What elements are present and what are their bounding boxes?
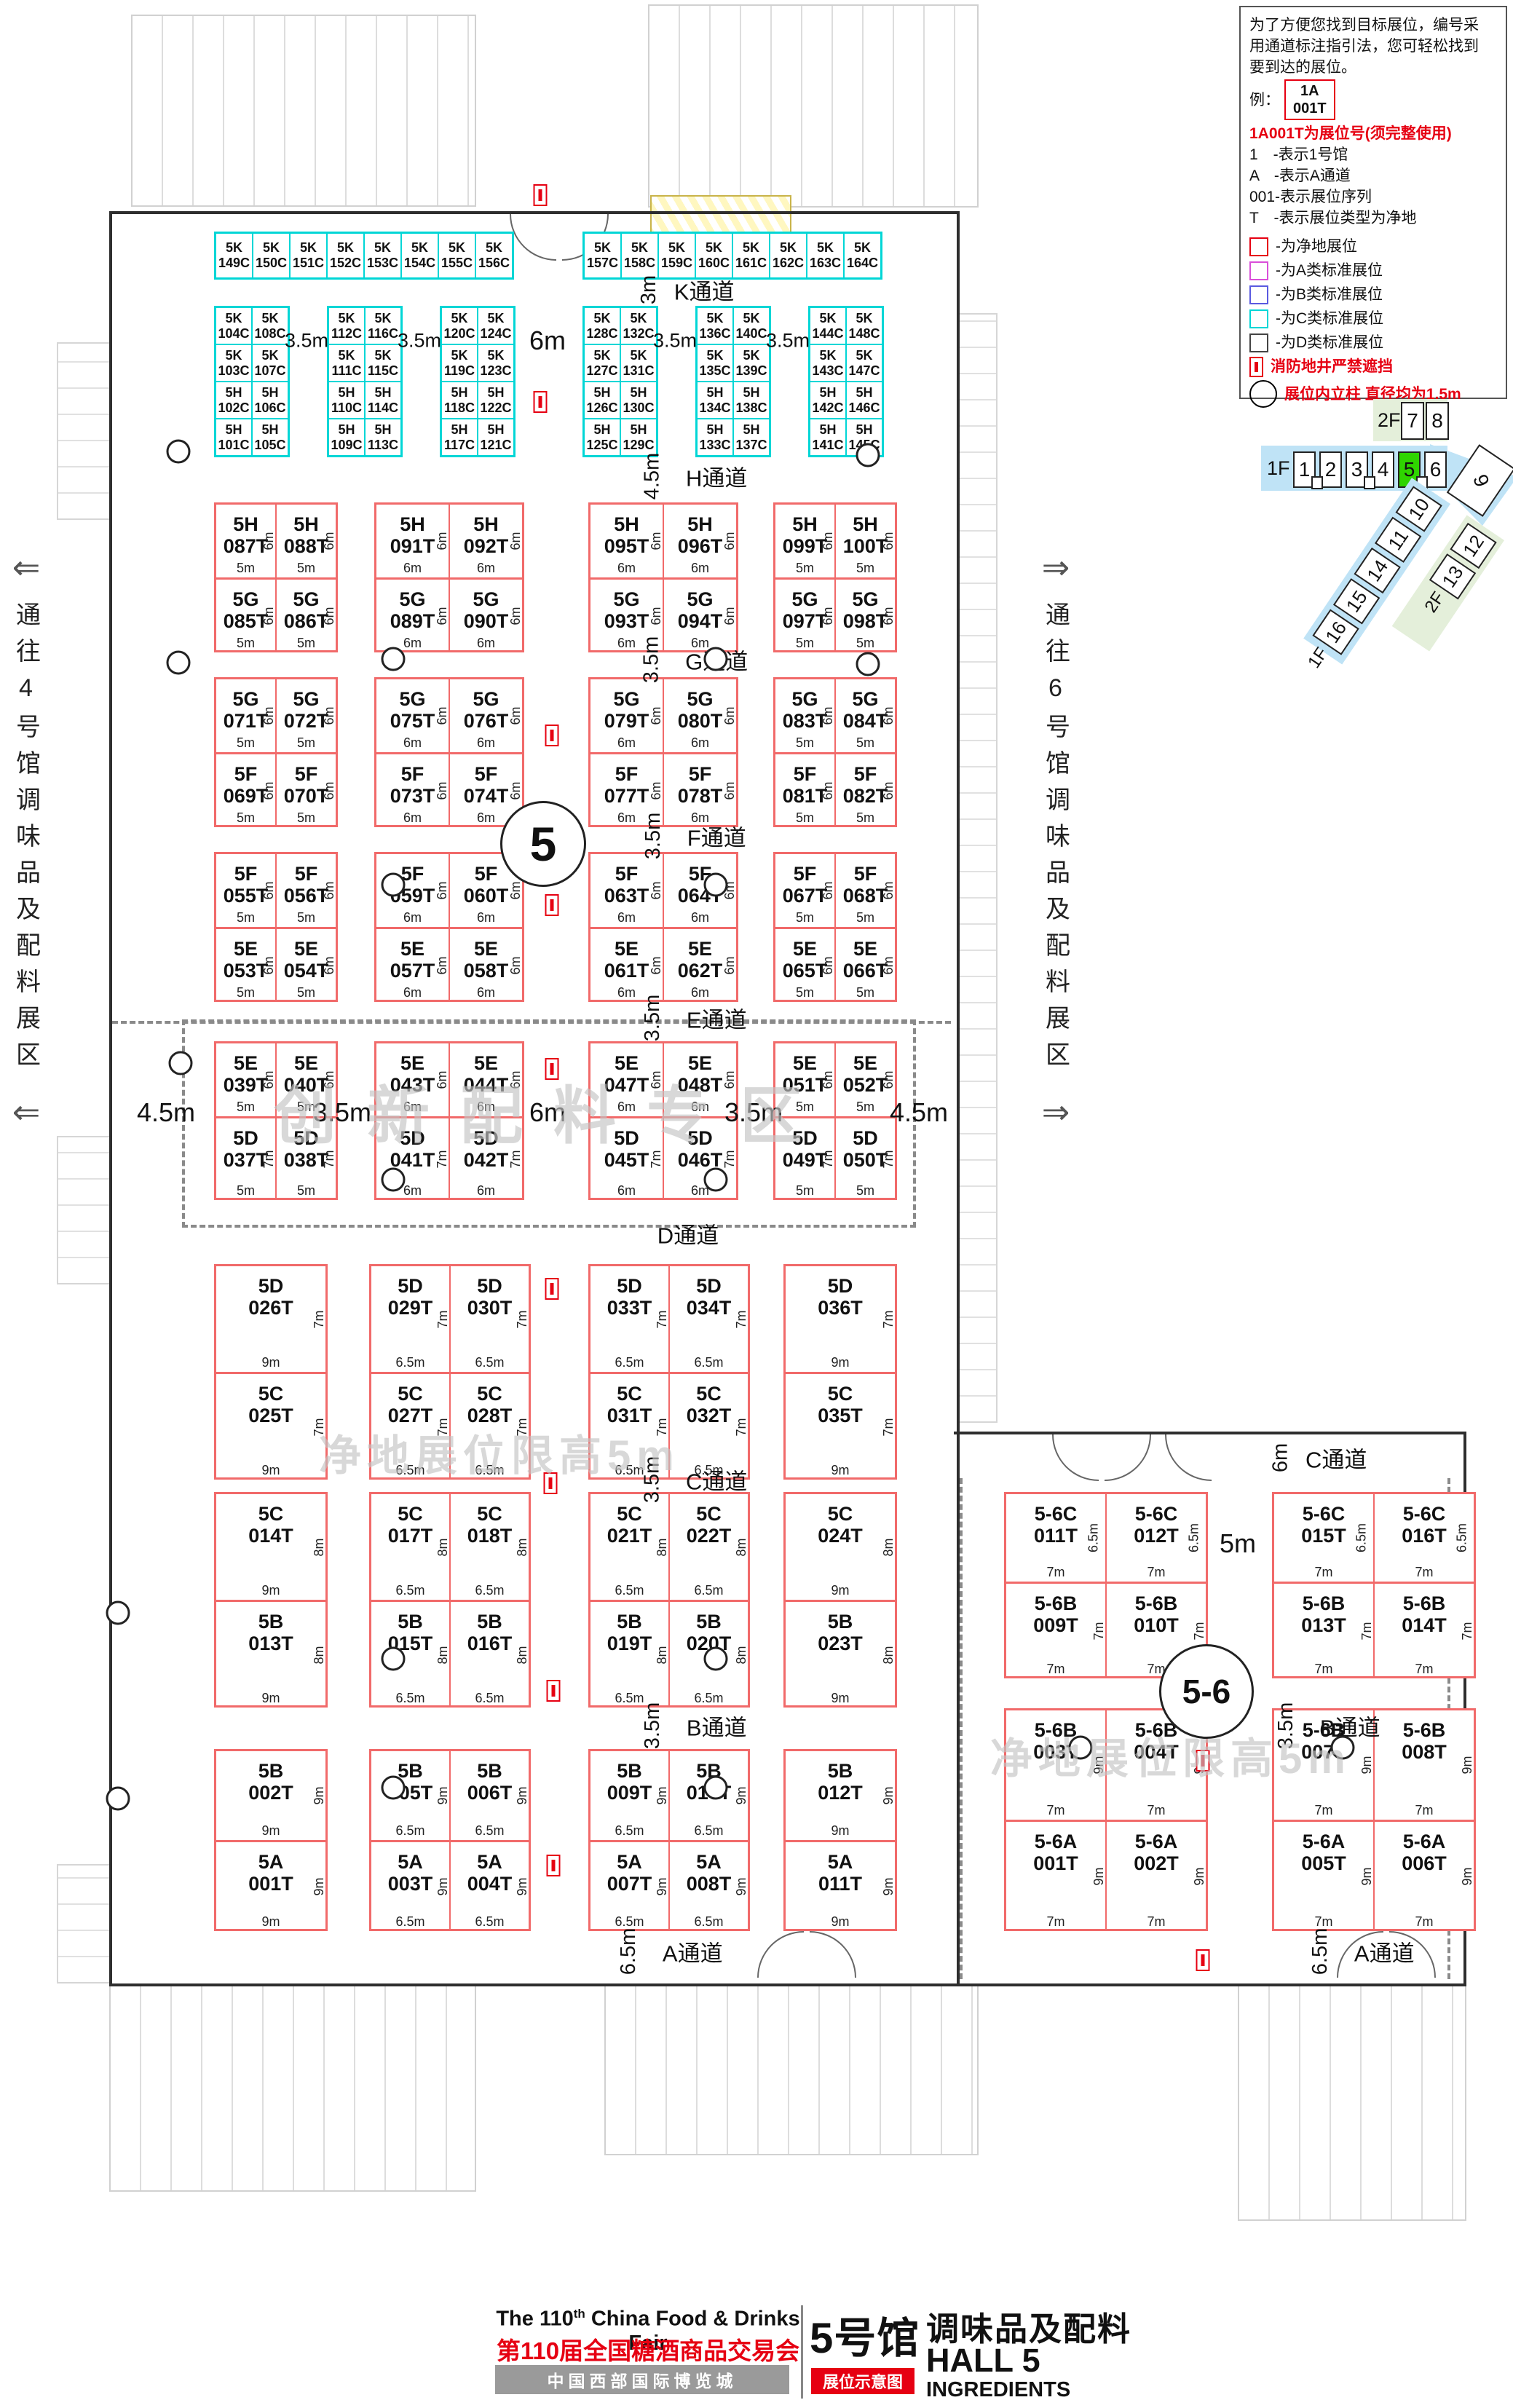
booth-5G-072T: 5G072T6m5m	[277, 679, 336, 752]
column-circle	[106, 1787, 130, 1811]
firewell-marker	[547, 1680, 561, 1702]
booth-5F-069T: 5F069T6m5m	[216, 754, 277, 827]
booth-block: 5-6C011T6.5m7m5-6C012T6.5m7m5-6B009T7m7m…	[1004, 1492, 1208, 1678]
swatch-label: -为B类标准展位	[1276, 284, 1383, 305]
watermark-height-limit-right: 净地展位限高5m	[990, 1724, 1351, 1785]
legend-item: T -表示展位类型为净地	[1249, 208, 1497, 229]
booth-5-6B-009T: 5-6B009T7m7m	[1006, 1584, 1107, 1678]
booth-block: 5G075T6m6m5G076T6m6m5F073T6m6m5F074T6m6m	[374, 677, 524, 827]
booth-5H-133C: 5H133C	[697, 419, 733, 456]
booth-block: 5-6C015T6.5m7m5-6C016T6.5m7m5-6B013T7m7m…	[1272, 1492, 1476, 1678]
aisle-label-B通道: 3.5mB通道	[629, 1710, 746, 1742]
booth-5K-119C: 5K119C	[441, 344, 478, 382]
booth-5E-058T: 5E058T6m6m	[450, 929, 522, 1002]
booth-5-6C-012T: 5-6C012T6.5m7m	[1107, 1494, 1206, 1582]
firewell-marker	[534, 391, 548, 413]
booth-5H-137C: 5H137C	[733, 419, 770, 456]
booth-block: 5C014T8m9m5B013T8m9m	[214, 1492, 328, 1708]
booth-5-6A-005T: 5-6A005T9m7m	[1274, 1822, 1375, 1931]
booth-5K-123C: 5K123C	[478, 344, 514, 382]
aisle-label-D通道: D通道	[657, 1217, 719, 1250]
booth-5K-163C: 5K163C	[807, 233, 844, 278]
aisle-label-A通道: 6.5mA通道	[1297, 1935, 1414, 1968]
booth-5K-160C: 5K160C	[695, 233, 732, 278]
venue-bar: 中国西部国际博览城	[495, 2365, 789, 2394]
booth-5D-026T: 5D026T7m9m	[216, 1266, 325, 1372]
booth-group: 5K120C5K124C5K119C5K123C5H118C5H122C5H11…	[440, 306, 515, 457]
dimension-label: 3.5m	[653, 330, 697, 352]
booth-5H-099T: 5H099T6m5m	[775, 505, 836, 577]
booth-5H-095T: 5H095T6m6m	[590, 505, 664, 577]
booth-5H-102C: 5H102C	[216, 382, 252, 419]
booth-5-6C-016T: 5-6C016T6.5m7m	[1375, 1494, 1474, 1582]
booth-5G-080T: 5G080T6m6m	[664, 679, 736, 752]
right-arrow-icon: ⇒	[1042, 548, 1070, 587]
column-icon	[1249, 380, 1277, 408]
firewell-marker	[1196, 1949, 1210, 1971]
hall-number-cn: 5号馆	[810, 2304, 920, 2365]
legend-intro-2: 用通道标注指引法，您可轻松找到	[1249, 36, 1497, 57]
dimension-label: 3.5m	[766, 330, 810, 352]
booth-5F-056T: 5F056T6m5m	[277, 854, 336, 927]
booth-5K-115C: 5K115C	[365, 344, 401, 382]
booth-5G-089T: 5G089T6m6m	[376, 580, 450, 652]
booth-5K-120C: 5K120C	[441, 307, 478, 344]
booth-5G-094T: 5G094T6m6m	[664, 580, 736, 652]
booth-5G-075T: 5G075T6m6m	[376, 679, 450, 752]
booth-5H-141C: 5H141C	[810, 419, 846, 456]
booth-5-6A-006T: 5-6A006T9m7m	[1375, 1822, 1474, 1931]
booth-5H-113C: 5H113C	[365, 419, 401, 456]
booth-5G-076T: 5G076T6m6m	[450, 679, 522, 752]
title-divider	[801, 2305, 803, 2399]
booth-block: 5G083T6m5m5G084T6m5m5F081T6m5m5F082T6m5m	[773, 677, 897, 827]
booth-5D-034T: 5D034T7m6.5m	[670, 1266, 748, 1372]
booth-5H-100T: 5H100T6m5m	[836, 505, 895, 577]
right-arrow-icon: ⇒	[1042, 1092, 1070, 1132]
booth-5G-098T: 5G098T6m5m	[836, 580, 895, 652]
swatch-label: -为C类标准展位	[1276, 308, 1383, 329]
booth-5E-061T: 5E061T6m6m	[590, 929, 664, 1002]
legend-fire-note: 消防地井严禁遮挡	[1271, 356, 1393, 377]
legend-swatch-row: -为B类标准展位	[1249, 284, 1497, 305]
booth-5G-071T: 5G071T6m5m	[216, 679, 277, 752]
column-circle	[106, 1601, 130, 1625]
booth-block: 5B002T9m9m5A001T9m9m	[214, 1749, 328, 1931]
booth-5K-140C: 5K140C	[733, 307, 770, 344]
swatch-label: -为净地展位	[1276, 236, 1357, 257]
map-diag-label: 2F	[1421, 588, 1450, 617]
booth-5K-107C: 5K107C	[252, 344, 288, 382]
dimension-label: 3.5m	[398, 330, 441, 352]
booth-block: 5G079T6m6m5G080T6m6m5F077T6m6m5F078T6m6m	[588, 677, 738, 827]
booth-5K-108C: 5K108C	[252, 307, 288, 344]
firewell-marker	[534, 184, 548, 206]
booth-5K-148C: 5K148C	[846, 307, 882, 344]
booth-5E-066T: 5E066T6m5m	[836, 929, 895, 1002]
booth-5G-090T: 5G090T6m6m	[450, 580, 522, 652]
column-circle	[167, 440, 191, 464]
aisle-label-G通道: 3.5mG通道	[628, 644, 748, 676]
booth-5B-013T: 5B013T8m9m	[216, 1602, 325, 1708]
booth-5K-132C: 5K132C	[620, 307, 657, 344]
legend-swatch-row: -为C类标准展位	[1249, 308, 1497, 329]
booth-5B-002T: 5B002T9m9m	[216, 1751, 325, 1840]
booth-5-6C-011T: 5-6C011T6.5m7m	[1006, 1494, 1107, 1582]
booth-group: 5K136C5K140C5K135C5K139C5H134C5H138C5H13…	[695, 306, 771, 457]
booth-block: 5B012T9m9m5A011T9m9m	[783, 1749, 897, 1931]
swatch-magenta-icon	[1249, 261, 1268, 280]
left-stairs-2	[57, 1136, 111, 1284]
booth-5K-135C: 5K135C	[697, 344, 733, 382]
top-left-rooms	[131, 15, 476, 207]
booth-5H-092T: 5H092T6m6m	[450, 505, 522, 577]
firewell-marker	[547, 1855, 561, 1876]
swatch-dark-icon	[1249, 333, 1268, 352]
booth-5H-121C: 5H121C	[478, 419, 514, 456]
booth-5E-054T: 5E054T6m5m	[277, 929, 336, 1002]
booth-5K-155C: 5K155C	[438, 233, 475, 278]
booth-block: 5H087T6m5m5H088T6m5m5G085T6m5m5G086T6m5m	[214, 502, 338, 652]
legend-intro-3: 要到达的展位。	[1249, 57, 1497, 78]
booth-5B-005T: 5B005T9m6.5m	[371, 1751, 451, 1840]
dimension-label: 3.5m	[285, 330, 328, 352]
hall-number-en: HALL 5	[926, 2342, 1040, 2380]
bottom-right-rooms	[1238, 1985, 1466, 2221]
booth-group: 5K112C5K116C5K111C5K115C5H110C5H114C5H10…	[327, 306, 403, 457]
legend-sample-booth: 1A 001T	[1284, 79, 1335, 120]
booth-5C-035T: 5C035T7m9m	[786, 1374, 895, 1480]
booth-block: 5F055T6m5m5F056T6m5m5E053T6m5m5E054T6m5m	[214, 852, 338, 1002]
aisle-label-A通道: 6.5mA通道	[605, 1935, 722, 1968]
booth-5B-023T: 5B023T8m9m	[786, 1602, 895, 1708]
map-diag-label: 1F	[1304, 644, 1332, 672]
booth-5D-029T: 5D029T7m6.5m	[371, 1266, 451, 1372]
booth-5F-068T: 5F068T6m5m	[836, 854, 895, 927]
booth-5A-001T: 5A001T9m9m	[216, 1842, 325, 1931]
booth-5C-018T: 5C018T8m6.5m	[451, 1494, 529, 1600]
right-corridor-text: 通往6号馆调味品及配料展区	[1038, 601, 1074, 1078]
column-circle	[382, 1776, 406, 1800]
left-arrow-icon: ⇐	[12, 548, 41, 587]
booth-5E-057T: 5E057T6m6m	[376, 929, 450, 1002]
fair-title-cn: 第110届全国糖酒商品交易会	[494, 2332, 802, 2366]
legend-swatch-row: -为D类标准展位	[1249, 332, 1497, 353]
left-stairs-1	[57, 342, 111, 520]
booth-5F-070T: 5F070T6m5m	[277, 754, 336, 827]
booth-5G-079T: 5G079T6m6m	[590, 679, 664, 752]
booth-5H-088T: 5H088T6m5m	[277, 505, 336, 577]
booth-block: 5C017T8m6.5m5C018T8m6.5m5B015T8m6.5m5B01…	[369, 1492, 531, 1708]
column-circle	[382, 873, 406, 897]
booth-5H-096T: 5H096T6m6m	[664, 505, 736, 577]
legend-swatch-row: -为净地展位	[1249, 236, 1497, 257]
swatch-label: -为D类标准展位	[1276, 332, 1383, 353]
right-corridor-note: ⇒ 通往6号馆调味品及配料展区 ⇒	[1034, 548, 1078, 1132]
booth-block: 5F067T6m5m5F068T6m5m5E065T6m5m5E066T6m5m	[773, 852, 897, 1002]
booth-group: 5K144C5K148C5K143C5K147C5H142C5H146C5H14…	[808, 306, 884, 457]
booth-5F-073T: 5F073T6m6m	[376, 754, 450, 827]
wing-dashed-left	[960, 1478, 963, 1979]
booth-strip: 5K149C5K150C5K151C5K152C5K153C5K154C5K15…	[214, 232, 514, 280]
booth-5K-124C: 5K124C	[478, 307, 514, 344]
booth-5H-142C: 5H142C	[810, 382, 846, 419]
aisle-label-C通道: 6mC通道	[1266, 1442, 1367, 1475]
aisle-label-H通道: 4.5mH通道	[629, 460, 748, 493]
hall56-circle-badge: 5-6	[1159, 1644, 1254, 1739]
booth-5H-110C: 5H110C	[328, 382, 365, 419]
booth-block: 5H091T6m6m5H092T6m6m5G089T6m6m5G090T6m6m	[374, 502, 524, 652]
sample-line1: 1A	[1300, 83, 1319, 99]
booth-5-6C-015T: 5-6C015T6.5m7m	[1274, 1494, 1375, 1582]
legend-swatch-row: -为A类标准展位	[1249, 260, 1497, 281]
swatch-red-icon	[1249, 237, 1268, 256]
legend-heading: 1A001T为展位号(须完整使用)	[1249, 123, 1497, 144]
bottom-center-entrance	[604, 1985, 979, 2155]
legend-item-list: 1 -表示1号馆A -表示A通道001-表示展位序列T -表示展位类型为净地	[1249, 144, 1497, 229]
booth-5H-114C: 5H114C	[365, 382, 401, 419]
booth-5H-087T: 5H087T6m5m	[216, 505, 277, 577]
booth-5B-016T: 5B016T8m6.5m	[451, 1602, 529, 1708]
booth-5B-012T: 5B012T9m9m	[786, 1751, 895, 1840]
booth-5H-126C: 5H126C	[584, 382, 620, 419]
booth-5K-156C: 5K156C	[475, 233, 513, 278]
booth-5F-055T: 5F055T6m5m	[216, 854, 277, 927]
booth-5B-009T: 5B009T9m6.5m	[590, 1751, 670, 1840]
left-arrow-icon: ⇐	[12, 1092, 41, 1132]
column-circle	[704, 1776, 728, 1800]
map-hall-8: 8	[1426, 402, 1449, 440]
swatch-cyan-icon	[1249, 309, 1268, 328]
booth-5K-112C: 5K112C	[328, 307, 365, 344]
booth-5H-118C: 5H118C	[441, 382, 478, 419]
column-circle	[704, 1647, 728, 1671]
legend-panel: 为了方便您找到目标展位，编号采 用通道标注指引法，您可轻松找到 要到达的展位。 …	[1239, 6, 1507, 399]
aisle-label-E通道: 3.5mE通道	[629, 1002, 746, 1035]
booth-5G-085T: 5G085T6m5m	[216, 580, 277, 652]
map-gap-box	[1311, 476, 1323, 489]
booth-5H-134C: 5H134C	[697, 382, 733, 419]
booth-5D-036T: 5D036T7m9m	[786, 1266, 895, 1372]
hall5-circle-badge: 5	[500, 801, 586, 887]
booth-5-6A-002T: 5-6A002T9m7m	[1107, 1822, 1206, 1931]
booth-block: 5D036T7m9m5C035T7m9m	[783, 1264, 897, 1480]
booth-5H-101C: 5H101C	[216, 419, 252, 456]
booth-5-6A-001T: 5-6A001T9m7m	[1006, 1822, 1107, 1931]
booth-block: 5H095T6m6m5H096T6m6m5G093T6m6m5G094T6m6m	[588, 502, 738, 652]
booth-5K-136C: 5K136C	[697, 307, 733, 344]
dimension-label: 5m	[1220, 1528, 1256, 1559]
booth-5K-128C: 5K128C	[584, 307, 620, 344]
booth-5K-161C: 5K161C	[732, 233, 770, 278]
left-corridor-text: 通往4号馆调味品及配料展区	[9, 601, 44, 1078]
booth-5K-157C: 5K157C	[584, 233, 621, 278]
legend-item: A -表示A通道	[1249, 165, 1497, 186]
booth-5K-116C: 5K116C	[365, 307, 401, 344]
legend-item: 1 -表示1号馆	[1249, 144, 1497, 165]
booth-5D-030T: 5D030T7m6.5m	[451, 1266, 529, 1372]
booth-strip: 5K157C5K158C5K159C5K160C5K161C5K162C5K16…	[582, 232, 882, 280]
booth-5F-067T: 5F067T6m5m	[775, 854, 836, 927]
booth-5F-063T: 5F063T6m6m	[590, 854, 664, 927]
booth-block: 5B009T9m6.5m5B010T9m6.5m5A007T9m6.5m5A00…	[588, 1749, 750, 1931]
booth-5E-053T: 5E053T6m5m	[216, 929, 277, 1002]
swatch-blue-icon	[1249, 285, 1268, 304]
booth-5K-151C: 5K151C	[290, 233, 327, 278]
booth-block: 5C021T8m6.5m5C022T8m6.5m5B019T8m6.5m5B02…	[588, 1492, 750, 1708]
booth-5E-065T: 5E065T6m5m	[775, 929, 836, 1002]
booth-5K-127C: 5K127C	[584, 344, 620, 382]
column-circle	[856, 443, 880, 467]
column-circle	[382, 1168, 406, 1192]
legend-example-label: 例：	[1249, 90, 1280, 111]
booth-5K-153C: 5K153C	[364, 233, 401, 278]
category-en: INGREDIENTS	[926, 2378, 1070, 2402]
booth-5A-004T: 5A004T9m6.5m	[451, 1842, 529, 1931]
booth-5C-025T: 5C025T7m9m	[216, 1374, 325, 1480]
booth-5-6B-014T: 5-6B014T7m7m	[1375, 1584, 1474, 1678]
bottom-left-rooms	[109, 1985, 476, 2192]
column-circle	[382, 647, 406, 671]
booth-5B-006T: 5B006T9m6.5m	[451, 1751, 529, 1840]
map-1f-label: 1F	[1267, 457, 1290, 480]
booth-5K-152C: 5K152C	[327, 233, 364, 278]
booth-5-6B-013T: 5-6B013T7m7m	[1274, 1584, 1375, 1678]
booth-5A-003T: 5A003T9m6.5m	[371, 1842, 451, 1931]
firewell-marker	[545, 1278, 559, 1300]
left-stairs-3	[57, 1864, 111, 1983]
fair-title-en-pre: The 110	[496, 2308, 573, 2331]
booth-5K-149C: 5K149C	[216, 233, 253, 278]
firewell-icon	[1249, 357, 1263, 377]
booth-5E-062T: 5E062T6m6m	[664, 929, 736, 1002]
booth-5H-122C: 5H122C	[478, 382, 514, 419]
firewell-marker	[545, 894, 559, 916]
booth-5K-111C: 5K111C	[328, 344, 365, 382]
booth-5H-109C: 5H109C	[328, 419, 365, 456]
map-2f-label: 2F	[1378, 409, 1401, 432]
booth-5H-105C: 5H105C	[252, 419, 288, 456]
legend-intro-1: 为了方便您找到目标展位，编号采	[1249, 15, 1497, 36]
booth-5A-007T: 5A007T9m6.5m	[590, 1842, 670, 1931]
fair-title-en-sup: th	[574, 2307, 585, 2321]
swatch-label: -为A类标准展位	[1276, 260, 1383, 281]
plan-badge: 展位示意图	[811, 2368, 914, 2394]
booth-5C-014T: 5C014T8m9m	[216, 1494, 325, 1600]
booth-5K-144C: 5K144C	[810, 307, 846, 344]
booth-5H-117C: 5H117C	[441, 419, 478, 456]
booth-5A-011T: 5A011T9m9m	[786, 1842, 895, 1931]
aisle-label-F通道: 3.5mF通道	[630, 820, 746, 853]
booth-5K-162C: 5K162C	[770, 233, 807, 278]
legend-swatch-list: -为净地展位-为A类标准展位-为B类标准展位-为C类标准展位-为D类标准展位	[1249, 236, 1497, 353]
map-hall-7: 7	[1401, 402, 1424, 440]
booth-block: 5H099T6m5m5H100T6m5m5G097T6m5m5G098T6m5m	[773, 502, 897, 652]
booth-5H-130C: 5H130C	[620, 382, 657, 419]
booth-5K-131C: 5K131C	[620, 344, 657, 382]
booth-5D-033T: 5D033T7m6.5m	[590, 1266, 670, 1372]
booth-5-6B-008T: 5-6B008T9m7m	[1375, 1710, 1474, 1820]
booth-5B-019T: 5B019T8m6.5m	[590, 1602, 670, 1708]
column-circle	[856, 652, 880, 676]
firewell-marker	[545, 725, 559, 746]
map-hall-9-label: 9	[1468, 471, 1494, 490]
booth-block: 5C024T8m9m5B023T8m9m	[783, 1492, 897, 1708]
booth-5G-086T: 5G086T6m5m	[277, 580, 336, 652]
booth-5C-021T: 5C021T8m6.5m	[590, 1494, 670, 1600]
column-circle	[382, 1647, 406, 1671]
floor-plan-page: 5K149C5K150C5K151C5K152C5K153C5K154C5K15…	[0, 0, 1513, 2408]
booth-5K-150C: 5K150C	[253, 233, 290, 278]
booth-5H-091T: 5H091T6m6m	[376, 505, 450, 577]
right-corridor	[957, 313, 998, 1423]
column-circle	[704, 873, 728, 897]
sample-line2: 001T	[1293, 100, 1327, 117]
booth-5K-158C: 5K158C	[621, 233, 658, 278]
booth-5K-164C: 5K164C	[844, 233, 881, 278]
booth-5H-125C: 5H125C	[584, 419, 620, 456]
watermark-innovation-zone: 创新配料专区	[189, 1065, 917, 1156]
watermark-height-limit-left: 净地展位限高5m	[319, 1421, 680, 1483]
legend-item: 001-表示展位序列	[1249, 186, 1497, 208]
column-circle	[704, 647, 728, 671]
booth-5K-104C: 5K104C	[216, 307, 252, 344]
dimension-label: 4.5m	[137, 1097, 195, 1128]
booth-5F-082T: 5F082T6m5m	[836, 754, 895, 827]
booth-5C-024T: 5C024T8m9m	[786, 1494, 895, 1600]
booth-5K-103C: 5K103C	[216, 344, 252, 382]
booth-block: 5D026T7m9m5C025T7m9m	[214, 1264, 328, 1480]
column-circle	[167, 651, 191, 675]
booth-5A-008T: 5A008T9m6.5m	[670, 1842, 748, 1931]
booth-5H-138C: 5H138C	[733, 382, 770, 419]
booth-5G-083T: 5G083T6m5m	[775, 679, 836, 752]
booth-5K-139C: 5K139C	[733, 344, 770, 382]
booth-5F-078T: 5F078T6m6m	[664, 754, 736, 827]
booth-5K-147C: 5K147C	[846, 344, 882, 382]
booth-5K-159C: 5K159C	[658, 233, 695, 278]
booth-5C-022T: 5C022T8m6.5m	[670, 1494, 748, 1600]
booth-group: 5K128C5K132C5K127C5K131C5H126C5H130C5H12…	[582, 306, 658, 457]
booth-5F-081T: 5F081T6m5m	[775, 754, 836, 827]
left-corridor-note: ⇐ 通往4号馆调味品及配料展区 ⇐	[4, 548, 48, 1132]
map-gap-box	[1364, 476, 1375, 489]
aisle-label-K通道: 3mK通道	[635, 274, 735, 307]
booth-5H-129C: 5H129C	[620, 419, 657, 456]
booth-5G-097T: 5G097T6m5m	[775, 580, 836, 652]
column-circle	[704, 1168, 728, 1192]
booth-5C-017T: 5C017T8m6.5m	[371, 1494, 451, 1600]
booth-5H-146C: 5H146C	[846, 382, 882, 419]
booth-5G-084T: 5G084T6m5m	[836, 679, 895, 752]
booth-block: 5G071T6m5m5G072T6m5m5F069T6m5m5F070T6m5m	[214, 677, 338, 827]
booth-5K-154C: 5K154C	[401, 233, 438, 278]
top-center-rooms	[648, 4, 979, 208]
booth-5H-106C: 5H106C	[252, 382, 288, 419]
dimension-label: 6m	[529, 325, 566, 356]
booth-5K-143C: 5K143C	[810, 344, 846, 382]
booth-group: 5K104C5K108C5K103C5K107C5H102C5H106C5H10…	[214, 306, 290, 457]
